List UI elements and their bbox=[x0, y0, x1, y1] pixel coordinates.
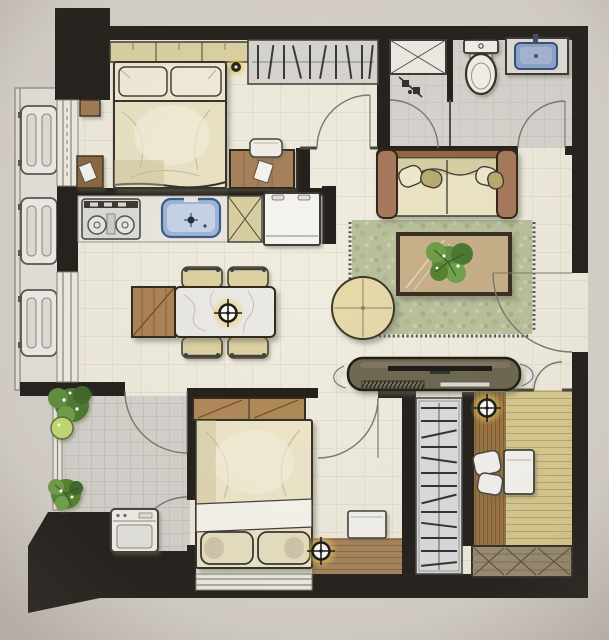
nightstand bbox=[348, 511, 386, 538]
folded-sheet bbox=[196, 499, 312, 532]
hanging-closet-rack bbox=[248, 40, 378, 84]
vanity-sink bbox=[506, 34, 568, 74]
cooktop bbox=[82, 199, 140, 239]
wall-left-column bbox=[57, 186, 78, 272]
ceiling-light-icon bbox=[304, 534, 338, 568]
sofa-arm bbox=[377, 150, 397, 218]
dining-table bbox=[132, 287, 275, 337]
double-bed bbox=[114, 62, 226, 188]
wall-bedroom2-top bbox=[187, 388, 318, 398]
ceiling-light-icon bbox=[211, 296, 245, 330]
wall-top-left-column bbox=[55, 8, 110, 100]
floor-plan-image bbox=[0, 0, 609, 640]
left-balcony bbox=[15, 88, 63, 390]
bedside-stool bbox=[80, 100, 100, 116]
small-pot bbox=[51, 417, 73, 439]
kitchen-sink bbox=[162, 197, 220, 237]
study-side-table bbox=[504, 450, 534, 494]
wall-bath-partition bbox=[447, 40, 453, 102]
tv-icon bbox=[388, 366, 492, 371]
bedside-stool bbox=[77, 156, 103, 188]
double-bed bbox=[196, 420, 312, 568]
wall-right-upper bbox=[572, 26, 588, 273]
wall-bathroom-stub bbox=[565, 146, 572, 155]
dining-chair bbox=[182, 337, 222, 358]
hanger-wardrobe bbox=[416, 398, 462, 574]
desk-chair bbox=[250, 139, 282, 157]
ac-unit-icon bbox=[18, 198, 60, 264]
wall-closet-left bbox=[402, 388, 416, 598]
ac-unit-icon bbox=[18, 290, 60, 356]
washing-machine bbox=[111, 509, 158, 552]
dining-chair bbox=[228, 267, 268, 288]
wall-closet-bathroom bbox=[377, 26, 390, 148]
pillow bbox=[171, 67, 221, 96]
refrigerator bbox=[264, 193, 320, 245]
wardrobe bbox=[110, 42, 248, 62]
window-bedroom1 bbox=[57, 100, 78, 186]
kitchen bbox=[78, 193, 322, 245]
window-dining bbox=[57, 272, 78, 382]
floor-plan-canvas bbox=[0, 0, 609, 640]
tall-cabinet bbox=[228, 196, 262, 242]
toilet bbox=[464, 40, 498, 94]
dining-chair bbox=[182, 267, 222, 288]
sofa bbox=[377, 150, 517, 218]
round-ottoman bbox=[332, 277, 394, 339]
ceiling-light-icon bbox=[470, 391, 504, 425]
overbed-wardrobe bbox=[193, 398, 305, 420]
tv-console bbox=[334, 358, 533, 390]
wall-kitchen-end bbox=[322, 186, 336, 244]
wall-light-icon bbox=[225, 56, 247, 78]
storage-cabinet bbox=[472, 546, 572, 577]
pillow bbox=[119, 67, 167, 96]
pipe-shaft bbox=[390, 40, 446, 74]
window-bedroom2 bbox=[196, 574, 312, 590]
wall-bedroom1-column bbox=[296, 148, 310, 196]
ac-unit-icon bbox=[18, 106, 60, 174]
wall-right-lower bbox=[572, 352, 588, 598]
dining-chair bbox=[228, 337, 268, 358]
